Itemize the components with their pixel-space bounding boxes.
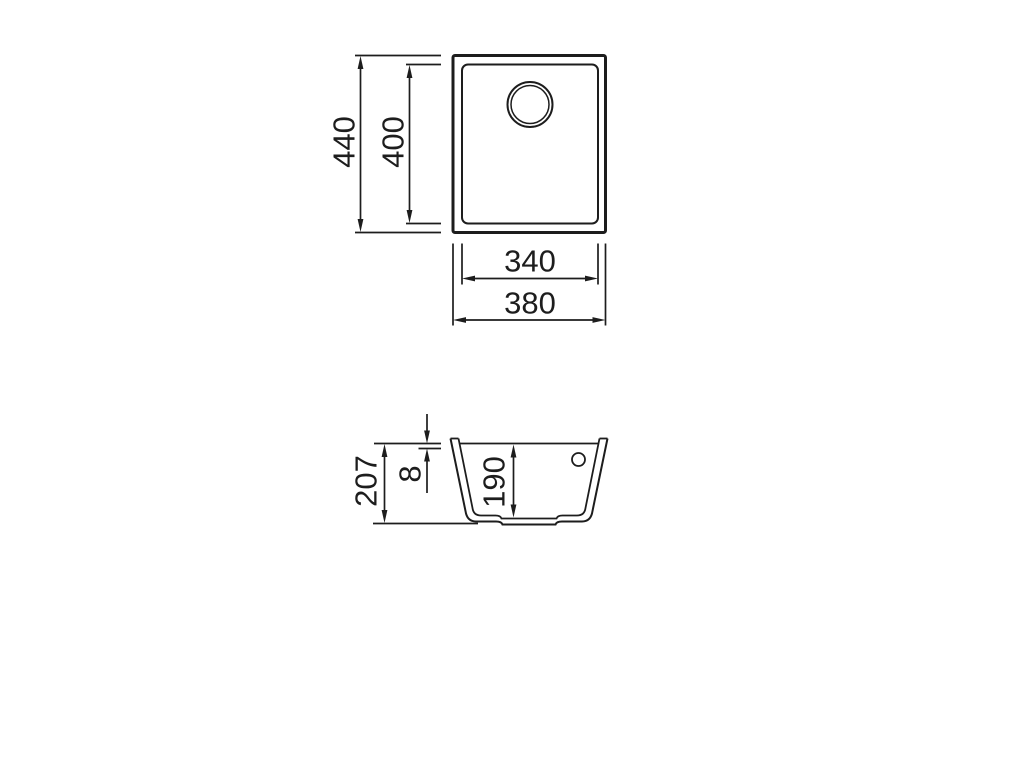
dim-label-outer-width: 380: [504, 288, 556, 319]
dim-8-arrow-down: [424, 431, 430, 444]
dim-440-arrow-up: [358, 56, 364, 69]
dim-380-arrow-left: [453, 317, 466, 323]
top-view: [355, 56, 606, 326]
drain-outer-circle: [508, 82, 553, 127]
dim-380-arrow-right: [593, 317, 606, 323]
sink-technical-drawing-page: 440 400 340 380 207 8 190: [0, 0, 1024, 768]
dim-400-arrow-up: [407, 65, 413, 78]
top-view-bowl-edge: [462, 65, 598, 224]
dim-label-overall-height: 207: [351, 455, 382, 507]
dim-400-arrow-down: [407, 210, 413, 223]
dim-440-arrow-down: [358, 219, 364, 232]
dim-8-arrow-up: [424, 449, 430, 462]
dim-207-arrow-down: [382, 510, 388, 523]
overflow-hole: [572, 453, 585, 466]
dim-label-bowl-depth: 190: [479, 456, 510, 508]
dim-bowl-height: [406, 65, 441, 224]
drain-inner-circle: [511, 86, 549, 124]
dim-label-outer-height: 440: [329, 116, 360, 168]
dim-label-bowl-width: 340: [504, 246, 556, 277]
dim-340-arrow-right: [585, 276, 598, 282]
sink-technical-drawing: [0, 0, 1024, 768]
dim-label-rim: 8: [395, 465, 426, 482]
dim-label-bowl-height: 400: [378, 116, 409, 168]
dim-340-arrow-left: [462, 276, 475, 282]
